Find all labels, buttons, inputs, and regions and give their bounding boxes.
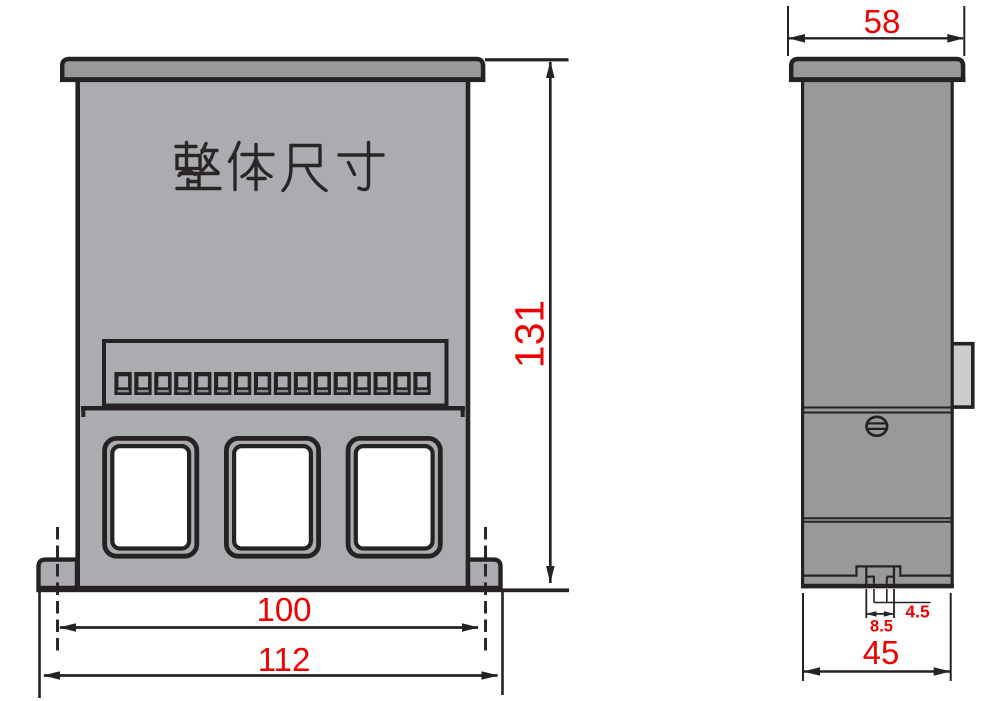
svg-text:131: 131 xyxy=(507,300,553,368)
svg-text:8.5: 8.5 xyxy=(870,618,893,636)
svg-text:4.5: 4.5 xyxy=(905,601,930,621)
svg-text:100: 100 xyxy=(256,591,311,628)
svg-text:58: 58 xyxy=(864,3,901,40)
svg-text:112: 112 xyxy=(258,641,311,678)
svg-text:45: 45 xyxy=(863,634,900,671)
